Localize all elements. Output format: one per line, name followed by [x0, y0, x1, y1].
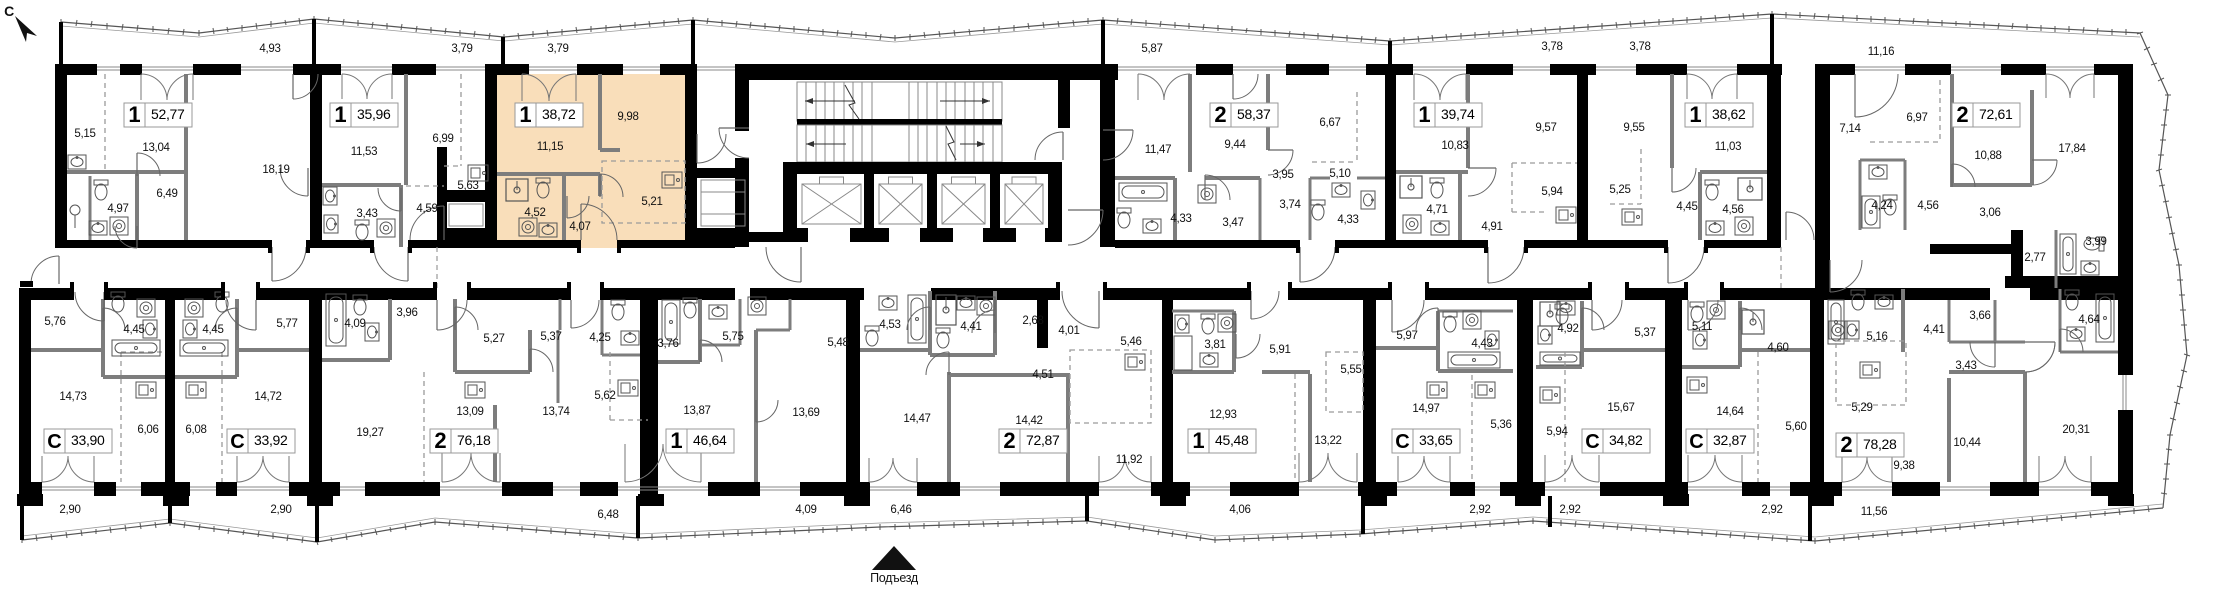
svg-text:5,48: 5,48 [827, 337, 848, 349]
svg-text:12,93: 12,93 [1209, 409, 1236, 421]
svg-text:3,43: 3,43 [356, 208, 377, 220]
svg-text:1: 1 [519, 102, 531, 127]
svg-text:19,27: 19,27 [356, 427, 383, 439]
svg-text:1: 1 [1192, 428, 1204, 453]
svg-text:С: С [1689, 431, 1703, 453]
svg-text:4,07: 4,07 [569, 221, 590, 233]
svg-text:9,38: 9,38 [1893, 460, 1914, 472]
svg-text:32,87: 32,87 [1713, 432, 1747, 448]
svg-text:78,28: 78,28 [1863, 436, 1897, 452]
svg-text:13,09: 13,09 [456, 406, 483, 418]
svg-text:6,48: 6,48 [597, 509, 618, 521]
svg-text:39,74: 39,74 [1441, 106, 1475, 122]
svg-text:9,44: 9,44 [1224, 139, 1246, 151]
svg-text:11,47: 11,47 [1145, 144, 1171, 156]
svg-text:Подъезд: Подъезд [870, 571, 919, 585]
svg-text:4,01: 4,01 [1058, 325, 1079, 337]
svg-text:33,90: 33,90 [71, 432, 105, 448]
svg-text:11,56: 11,56 [1861, 506, 1887, 518]
svg-text:4,41: 4,41 [960, 321, 981, 333]
svg-text:4,33: 4,33 [1337, 214, 1358, 226]
svg-text:2,92: 2,92 [1559, 504, 1580, 516]
svg-text:5,76: 5,76 [44, 316, 65, 328]
svg-text:3,79: 3,79 [547, 43, 568, 55]
svg-text:3,43: 3,43 [1955, 360, 1976, 372]
svg-text:1: 1 [128, 102, 140, 127]
svg-text:4,52: 4,52 [524, 207, 545, 219]
svg-text:5,36: 5,36 [1490, 419, 1511, 431]
svg-text:4,92: 4,92 [1557, 323, 1578, 335]
svg-text:4,41: 4,41 [1923, 324, 1944, 336]
svg-text:4,43: 4,43 [1471, 338, 1492, 350]
svg-text:4,93: 4,93 [259, 43, 280, 55]
svg-text:4,64: 4,64 [2078, 314, 2100, 326]
svg-text:2: 2 [1956, 102, 1968, 127]
svg-text:18,19: 18,19 [262, 164, 289, 176]
svg-text:3,66: 3,66 [1969, 310, 1990, 322]
svg-text:5,94: 5,94 [1541, 186, 1563, 198]
svg-text:5,87: 5,87 [1141, 43, 1162, 55]
svg-text:14,97: 14,97 [1412, 403, 1439, 415]
svg-text:6,46: 6,46 [890, 504, 911, 516]
svg-text:4,56: 4,56 [1722, 204, 1743, 216]
svg-text:5,55: 5,55 [1340, 364, 1361, 376]
svg-text:38,62: 38,62 [1712, 106, 1746, 122]
svg-text:3,76: 3,76 [657, 338, 678, 350]
svg-text:14,64: 14,64 [1716, 406, 1744, 418]
svg-text:6,67: 6,67 [1319, 117, 1340, 129]
svg-text:2,92: 2,92 [1761, 504, 1782, 516]
svg-text:6,08: 6,08 [185, 424, 206, 436]
svg-text:3,99: 3,99 [2085, 236, 2106, 248]
svg-text:14,73: 14,73 [59, 391, 86, 403]
svg-text:4,97: 4,97 [107, 203, 128, 215]
svg-text:5,16: 5,16 [1866, 331, 1887, 343]
svg-text:2,77: 2,77 [2024, 252, 2045, 264]
svg-text:4,51: 4,51 [1032, 369, 1053, 381]
svg-text:5,97: 5,97 [1396, 330, 1417, 342]
svg-text:11,16: 11,16 [1868, 46, 1894, 58]
svg-text:4,33: 4,33 [1170, 213, 1191, 225]
svg-text:4,45: 4,45 [202, 324, 223, 336]
svg-text:5,29: 5,29 [1851, 402, 1872, 414]
svg-text:5,62: 5,62 [594, 390, 615, 402]
svg-text:3,78: 3,78 [1629, 41, 1650, 53]
svg-text:5,46: 5,46 [1120, 336, 1141, 348]
svg-text:5,15: 5,15 [74, 128, 95, 140]
svg-text:4,45: 4,45 [123, 324, 144, 336]
svg-text:5,25: 5,25 [1609, 184, 1630, 196]
svg-text:13,74: 13,74 [542, 406, 570, 418]
svg-text:4,06: 4,06 [1229, 504, 1250, 516]
svg-text:С: С [230, 431, 244, 453]
svg-text:9,55: 9,55 [1623, 122, 1644, 134]
svg-text:5,21: 5,21 [641, 196, 662, 208]
svg-text:2: 2 [1003, 428, 1015, 453]
svg-text:10,83: 10,83 [1441, 140, 1468, 152]
svg-text:2: 2 [434, 428, 446, 453]
svg-text:2,90: 2,90 [59, 504, 80, 516]
svg-text:1: 1 [334, 102, 346, 127]
svg-text:10,44: 10,44 [1953, 437, 1981, 449]
svg-text:5,37: 5,37 [1634, 327, 1655, 339]
svg-text:5,60: 5,60 [1785, 421, 1806, 433]
svg-text:58,37: 58,37 [1237, 106, 1271, 122]
svg-text:7,14: 7,14 [1839, 123, 1861, 135]
svg-text:3,47: 3,47 [1222, 217, 1243, 229]
svg-text:С: С [1585, 431, 1599, 453]
svg-text:11,53: 11,53 [351, 146, 377, 158]
svg-text:6,99: 6,99 [432, 133, 453, 145]
svg-text:17,84: 17,84 [2058, 143, 2086, 155]
svg-text:3,79: 3,79 [451, 43, 472, 55]
svg-text:15,67: 15,67 [1607, 402, 1634, 414]
svg-text:4,09: 4,09 [795, 504, 816, 516]
svg-text:4,91: 4,91 [1481, 221, 1502, 233]
svg-text:6,06: 6,06 [137, 424, 158, 436]
svg-text:33,65: 33,65 [1419, 432, 1453, 448]
svg-text:5,10: 5,10 [1329, 168, 1350, 180]
svg-text:9,57: 9,57 [1535, 122, 1556, 134]
svg-text:20,31: 20,31 [2062, 424, 2089, 436]
svg-text:4,59: 4,59 [416, 203, 437, 215]
svg-text:2,90: 2,90 [270, 504, 291, 516]
svg-text:10,88: 10,88 [1974, 150, 2001, 162]
svg-text:3,96: 3,96 [396, 307, 417, 319]
svg-text:11,15: 11,15 [537, 141, 563, 153]
svg-text:13,69: 13,69 [792, 407, 819, 419]
svg-text:35,96: 35,96 [357, 106, 391, 122]
svg-text:3,81: 3,81 [1204, 339, 1225, 351]
svg-text:3,74: 3,74 [1279, 199, 1301, 211]
svg-text:С: С [4, 3, 14, 19]
svg-text:5,27: 5,27 [483, 333, 504, 345]
svg-text:5,63: 5,63 [457, 180, 478, 192]
svg-text:4,25: 4,25 [589, 332, 610, 344]
svg-text:33,92: 33,92 [254, 432, 288, 448]
svg-text:2: 2 [1840, 432, 1852, 457]
svg-text:2,68: 2,68 [1022, 315, 1043, 327]
svg-text:45,48: 45,48 [1215, 432, 1249, 448]
svg-text:С: С [47, 431, 61, 453]
svg-text:13,04: 13,04 [142, 142, 170, 154]
svg-text:4,56: 4,56 [1917, 200, 1938, 212]
svg-text:1: 1 [1689, 102, 1701, 127]
svg-text:2,92: 2,92 [1469, 504, 1490, 516]
svg-text:5,75: 5,75 [722, 331, 743, 343]
svg-text:1: 1 [1418, 102, 1430, 127]
svg-text:72,61: 72,61 [1979, 106, 2013, 122]
svg-text:34,82: 34,82 [1609, 432, 1643, 448]
svg-text:9,98: 9,98 [617, 111, 638, 123]
svg-text:13,87: 13,87 [683, 405, 710, 417]
svg-text:4,60: 4,60 [1767, 342, 1788, 354]
svg-text:11,92: 11,92 [1116, 454, 1142, 466]
svg-text:6,97: 6,97 [1906, 112, 1927, 124]
svg-text:2: 2 [1214, 102, 1226, 127]
svg-text:46,64: 46,64 [693, 432, 727, 448]
svg-text:5,11: 5,11 [1692, 321, 1712, 333]
svg-text:4,45: 4,45 [1676, 201, 1697, 213]
svg-text:4,53: 4,53 [879, 319, 900, 331]
svg-text:72,87: 72,87 [1026, 432, 1060, 448]
svg-text:3,95: 3,95 [1272, 169, 1293, 181]
svg-text:5,94: 5,94 [1546, 426, 1568, 438]
svg-text:5,77: 5,77 [276, 318, 297, 330]
svg-text:4,09: 4,09 [344, 318, 365, 330]
svg-text:4,71: 4,71 [1426, 204, 1447, 216]
svg-text:5,91: 5,91 [1269, 344, 1290, 356]
svg-text:38,72: 38,72 [542, 106, 576, 122]
svg-text:52,77: 52,77 [151, 106, 185, 122]
svg-text:5,37: 5,37 [540, 331, 561, 343]
svg-text:3,78: 3,78 [1541, 41, 1562, 53]
svg-text:3,06: 3,06 [1979, 207, 2000, 219]
svg-text:14,72: 14,72 [254, 391, 281, 403]
svg-text:14,42: 14,42 [1015, 415, 1042, 427]
svg-text:С: С [1395, 431, 1409, 453]
svg-text:76,18: 76,18 [457, 432, 491, 448]
svg-text:6,49: 6,49 [156, 188, 177, 200]
svg-text:1: 1 [670, 428, 682, 453]
svg-text:4,24: 4,24 [1871, 200, 1893, 212]
svg-text:14,47: 14,47 [903, 413, 930, 425]
svg-text:13,22: 13,22 [1314, 435, 1341, 447]
svg-text:11,03: 11,03 [1715, 141, 1741, 153]
